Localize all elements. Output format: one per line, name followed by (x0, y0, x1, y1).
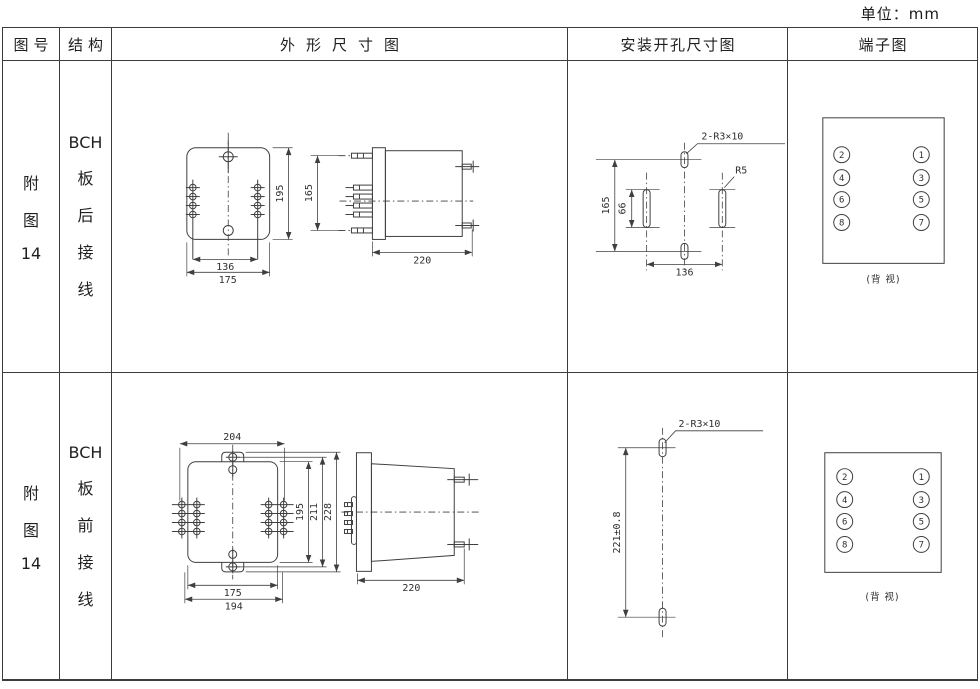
structure-char: 线 (77, 586, 93, 610)
structure-char: 接 (77, 239, 93, 263)
dim-pin-span: 136 (216, 262, 234, 273)
row2-structure: BCH 板 前 接 线 (60, 373, 112, 679)
row1-outline-cell: 136 175 195 (112, 61, 568, 373)
terminal-number: 3 (919, 496, 924, 506)
terminal-number: 5 (919, 518, 924, 528)
terminal-number: 1 (919, 473, 924, 483)
row1-terminal-view: 2 4 6 8 1 3 5 7 (背 视) (823, 118, 944, 285)
dim-side-depth: 220 (413, 255, 431, 266)
row1-figure-no: 附 图 14 (3, 61, 60, 373)
terminal-view-caption: (背 视) (866, 273, 900, 285)
label-corner-radius: R5 (735, 166, 747, 177)
label-slot-size: 2-R3×10 (701, 132, 743, 143)
row2-mounting-drawing: 221±0.8 2-R3×10 (568, 373, 787, 679)
row1-mounting-view: 2-R3×10 R5 165 66 136 (596, 132, 785, 279)
dim-mounting-span: 136 (675, 267, 693, 278)
terminal-view-caption: (背 视) (865, 591, 899, 603)
terminal-number: 5 (919, 196, 924, 206)
row2-side-dimensions: 220 (357, 548, 464, 593)
row2-outline-cell: 204 195 211 228 175 (112, 373, 568, 679)
structure-char: 前 (77, 512, 93, 536)
row1-structure: BCH 板 后 接 线 (60, 61, 112, 373)
row1-mounting-drawing: 2-R3×10 R5 165 66 136 (568, 61, 787, 372)
structure-char: BCH (69, 133, 103, 152)
row2-outline-drawing: 204 195 211 228 175 (112, 373, 567, 679)
row1-side-view (339, 148, 480, 240)
figure-char: 14 (21, 554, 41, 573)
row1-side-dimensions: 165 220 (304, 156, 472, 267)
row1-front-dimensions: 136 175 195 (187, 148, 293, 286)
figure-char: 图 (23, 517, 39, 541)
terminal-number: 7 (919, 219, 924, 229)
terminal-number: 4 (842, 496, 847, 506)
figure-char: 附 (23, 170, 39, 194)
row2-terminal-cell: 2 4 6 8 1 3 5 7 (背 视) (788, 373, 977, 679)
header-terminal: 端子图 (788, 28, 977, 61)
dim-side-depth: 220 (402, 583, 420, 594)
terminal-number: 4 (839, 174, 844, 184)
dimension-table: 图号 结构 外形尺寸图 安装开孔尺寸图 端子图 附 图 14 BCH 板 后 接… (2, 27, 978, 681)
dim-height-mid: 211 (309, 503, 320, 521)
dim-side-height: 165 (304, 184, 315, 202)
dim-front-height: 195 (275, 185, 286, 203)
dim-height-outer: 228 (323, 503, 334, 521)
drawing-sheet: 单位：mm 图号 结构 外形尺寸图 安装开孔尺寸图 端子图 附 图 14 BCH… (0, 0, 980, 689)
terminal-number: 6 (842, 518, 847, 528)
row1-mounting-cell: 2-R3×10 R5 165 66 136 (568, 61, 788, 373)
structure-char: 线 (77, 276, 93, 300)
dim-top-width: 204 (223, 432, 241, 443)
dim-vertical-span: 221±0.8 (612, 511, 623, 553)
figure-char: 图 (23, 207, 39, 231)
figure-char: 14 (21, 244, 41, 263)
dim-width-outer: 194 (225, 602, 243, 613)
row1-outline-drawing: 136 175 195 (112, 61, 567, 372)
terminal-number: 3 (919, 174, 924, 184)
row1-terminal-diagram: 2 4 6 8 1 3 5 7 (背 视) (788, 61, 977, 372)
row2-terminal-diagram: 2 4 6 8 1 3 5 7 (背 视) (788, 373, 977, 679)
terminal-number: 8 (842, 541, 847, 551)
header-structure: 结构 (60, 28, 112, 61)
row1-front-view (186, 133, 270, 260)
terminal-number: 8 (839, 219, 844, 229)
row2-front-view (172, 445, 294, 580)
unit-label: 单位：mm (861, 3, 940, 24)
terminal-number: 6 (839, 196, 844, 206)
figure-char: 附 (23, 480, 39, 504)
dim-front-width: 175 (219, 275, 237, 286)
row2-terminal-view: 2 4 6 8 1 3 5 7 (背 视) (825, 453, 941, 604)
header-outline: 外形尺寸图 (112, 28, 568, 61)
structure-char: 板 (77, 475, 93, 499)
structure-char: 接 (77, 549, 93, 573)
dim-height-inner: 195 (295, 503, 306, 521)
dim-slot-length: 66 (618, 203, 629, 215)
terminal-number: 2 (839, 151, 844, 161)
row2-figure-no: 附 图 14 (3, 373, 60, 679)
header-mounting: 安装开孔尺寸图 (568, 28, 788, 61)
structure-char: BCH (69, 443, 103, 462)
terminal-number: 7 (919, 541, 924, 551)
terminal-number: 2 (842, 473, 847, 483)
structure-char: 板 (77, 165, 93, 189)
terminal-number: 1 (919, 151, 924, 161)
structure-char: 后 (77, 202, 93, 226)
dim-mounting-height: 165 (601, 197, 612, 215)
row2-side-view (341, 453, 481, 572)
row2-mounting-cell: 221±0.8 2-R3×10 (568, 373, 788, 679)
label-slot-size: 2-R3×10 (678, 419, 720, 430)
dim-width-inner: 175 (224, 588, 242, 599)
header-figure-no: 图号 (3, 28, 60, 61)
row1-terminal-cell: 2 4 6 8 1 3 5 7 (背 视) (788, 61, 977, 373)
row2-mounting-view: 221±0.8 2-R3×10 (612, 419, 763, 637)
